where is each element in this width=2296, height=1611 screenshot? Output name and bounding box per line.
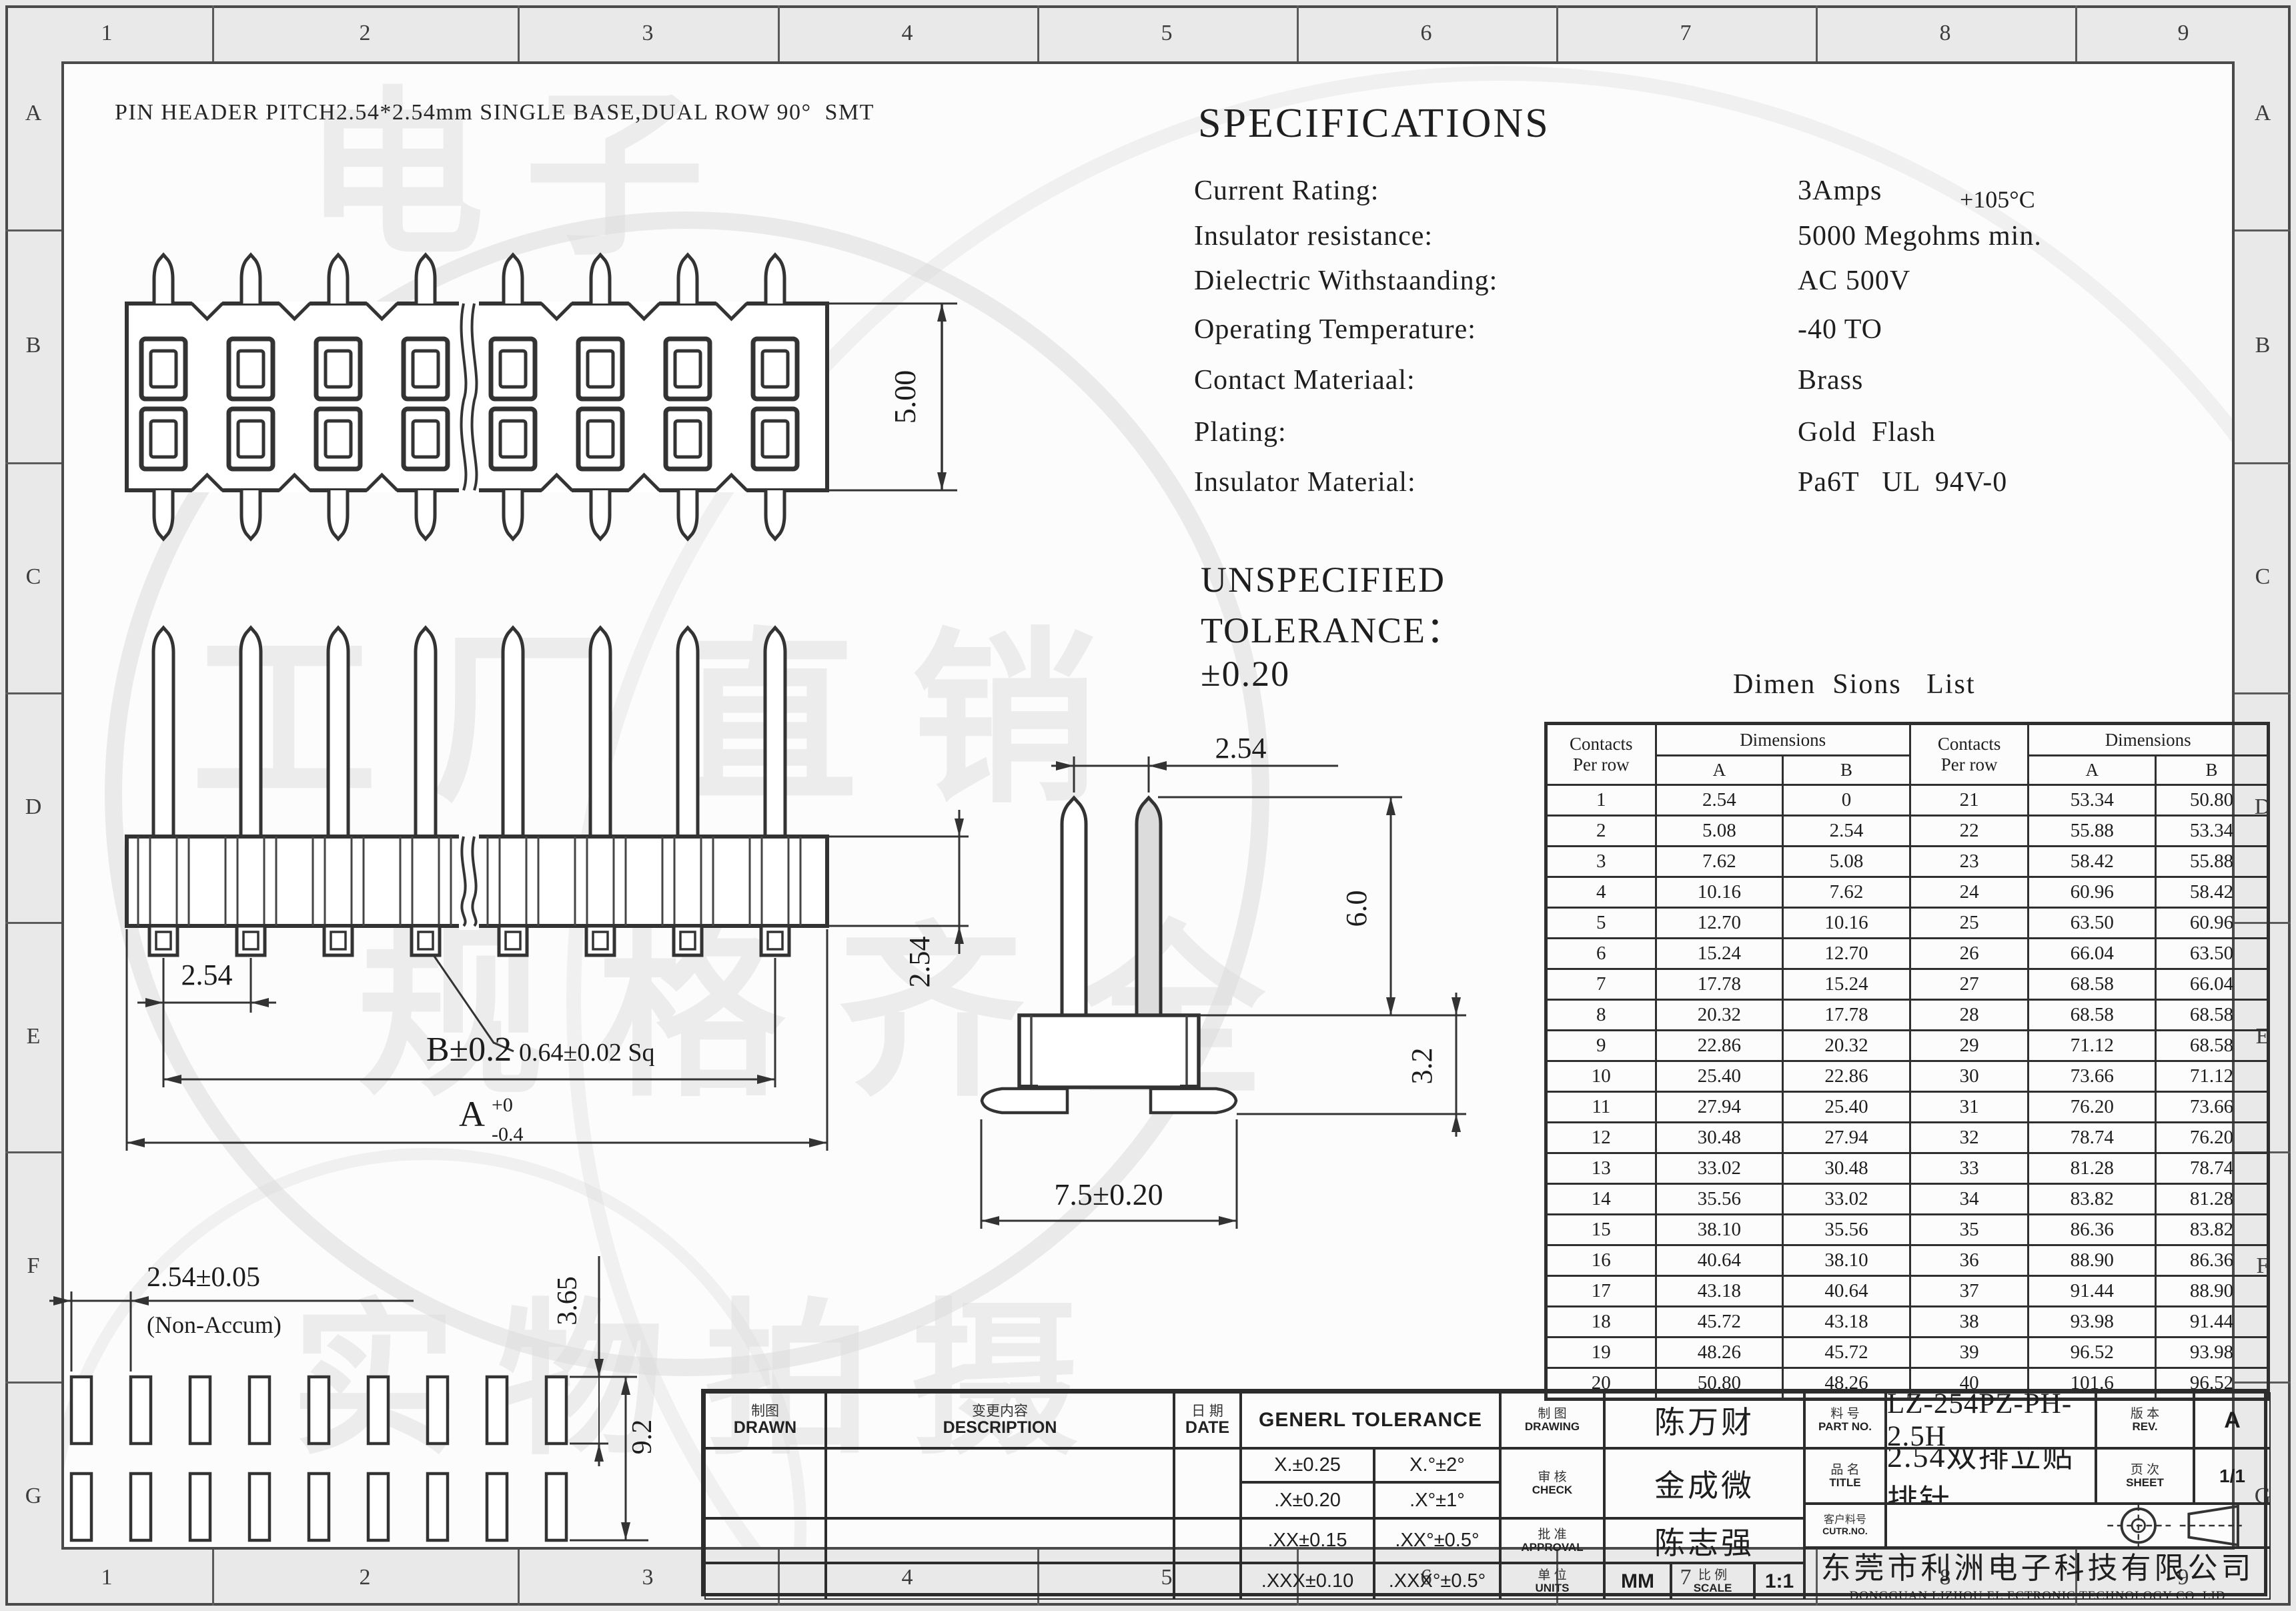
smt-feet	[149, 926, 789, 955]
table-row: 37.625.082358.4255.88	[1546, 847, 2269, 877]
units-value: MM	[1604, 1563, 1671, 1600]
projection-symbol-icon	[2105, 1505, 2245, 1546]
label-cn: 制 图	[1538, 1408, 1566, 1421]
label-en: APPROVAL	[1521, 1542, 1583, 1554]
dim-cell: 12.70	[1656, 908, 1783, 939]
frame-row-label: G	[25, 1484, 42, 1509]
dim-cell: 93.98	[2156, 1337, 2269, 1368]
frame-tick	[778, 5, 780, 61]
approval-name: 陈志强	[1604, 1518, 1804, 1563]
label-en: REV.	[2132, 1421, 2157, 1433]
header-line: Per row	[1911, 754, 2028, 775]
dim-cell: 16	[1546, 1245, 1656, 1276]
dim-cell: 22	[1910, 816, 2029, 847]
spec-label: Operating Temperature:	[1194, 314, 1476, 346]
table-row: 1538.1035.563586.3683.82	[1546, 1215, 2269, 1245]
revision-cell	[826, 1518, 1174, 1563]
revision-cell	[1174, 1563, 1241, 1600]
part-no-value: LZ-254PZ-PH-2.5H	[1886, 1392, 2096, 1448]
contact-pad-inner	[500, 351, 526, 387]
arrow-up-icon	[937, 304, 947, 322]
solder-pad	[368, 1377, 388, 1444]
dim-cell: 23	[1910, 847, 2029, 877]
dim-cell: 0	[1783, 785, 1910, 816]
frame-row-label: A	[25, 101, 42, 126]
solder-pad	[368, 1474, 388, 1540]
tolerance-linear: .XX±0.15	[1241, 1518, 1374, 1563]
dim-cell: 24	[1910, 877, 2029, 908]
label-en: SHEET	[2126, 1477, 2164, 1489]
frame-col-label: 6	[1421, 21, 1432, 46]
revision-cell	[1174, 1518, 1241, 1563]
label-cn: 日 期	[1191, 1404, 1223, 1419]
spec-label: Insulator Material:	[1194, 466, 1416, 498]
dim-cell: 13	[1546, 1153, 1656, 1184]
frame-col-label: 7	[1680, 21, 1692, 46]
label-sheet: 页 次SHEET	[2096, 1448, 2194, 1504]
dim-cell: 30	[1910, 1061, 2029, 1092]
dim-cell: 11	[1546, 1092, 1656, 1123]
pin	[678, 628, 698, 838]
contact-pad-inner	[588, 421, 613, 457]
dim-cell: 43.18	[1783, 1307, 1910, 1337]
label-en: CHECK	[1532, 1484, 1572, 1496]
dim-cell: 81.28	[2029, 1153, 2156, 1184]
pins	[153, 628, 785, 838]
table-row: 12.5402153.3450.80	[1546, 785, 2269, 816]
dim-cell: 8	[1546, 1000, 1656, 1031]
frame-row-label: E	[27, 1024, 41, 1049]
dim-cell: 33.02	[1783, 1184, 1910, 1215]
dim-pad-length: 3.65	[552, 1276, 583, 1325]
pin	[153, 628, 173, 838]
dim-cell: 91.44	[2029, 1276, 2156, 1307]
label-approval: 批 准APPROVAL	[1500, 1518, 1604, 1563]
rev-value: A	[2194, 1392, 2271, 1448]
solder-pad	[131, 1474, 151, 1540]
dim-cell: 38	[1910, 1307, 2029, 1337]
revision-cell	[704, 1518, 826, 1563]
frame-col-label: 8	[1940, 21, 1951, 46]
solder-pads	[71, 1377, 566, 1540]
table-row: 1127.9425.403176.2073.66	[1546, 1092, 2269, 1123]
dim-cell: 3	[1546, 847, 1656, 877]
dim-arrows	[981, 761, 1461, 1225]
dim-cell: 81.28	[2156, 1184, 2269, 1215]
label-cn: 批 准	[1538, 1528, 1566, 1542]
smt-foot-inner	[680, 932, 695, 949]
dimensions-table: Contacts Per row Dimensions Contacts Per…	[1544, 722, 2270, 1401]
dim-cell: 2	[1546, 816, 1656, 847]
contact-pad-inner	[326, 351, 351, 387]
title-value: 2.54双排立贴排针	[1886, 1448, 2096, 1504]
dim-row-span: 9.2	[627, 1420, 658, 1455]
dim-cell: 6	[1546, 939, 1656, 969]
dim-cell: 86.36	[2156, 1245, 2269, 1276]
table-row: 1333.0230.483381.2878.74	[1546, 1153, 2269, 1184]
solder-pad	[309, 1474, 329, 1540]
top-view-drawing: 5.00	[100, 240, 981, 554]
dim-cell: 28	[1910, 1000, 2029, 1031]
dim-cell: 40.64	[1656, 1245, 1783, 1276]
frame-col-label: 2	[360, 21, 371, 46]
dim-cell: 58.42	[2156, 877, 2269, 908]
solder-pad	[546, 1474, 566, 1540]
solder-pad	[190, 1474, 210, 1540]
table-row: 615.2412.702666.0463.50	[1546, 939, 2269, 969]
frame-col-label: 4	[902, 21, 913, 46]
label-cn: 审 核	[1538, 1471, 1566, 1484]
tolerance-angular: .XXX°±0.5°	[1374, 1563, 1500, 1600]
dim-cell: 37	[1910, 1276, 2029, 1307]
dim-cell: 21	[1910, 785, 2029, 816]
dim-cell: 17	[1546, 1276, 1656, 1307]
header-drawn: 制图DRAWN	[704, 1392, 826, 1448]
dim-cell: 25	[1910, 908, 2029, 939]
dim-cell: 18	[1546, 1307, 1656, 1337]
pin	[241, 628, 261, 838]
dim-lines	[981, 756, 1466, 1229]
contact-pad-inner	[500, 421, 526, 457]
frame-tick	[518, 5, 520, 61]
spec-value: Gold Flash	[1798, 416, 1936, 448]
spec-value: 3Amps	[1798, 175, 1882, 207]
tolerance-angular: .XX°±0.5°	[1374, 1518, 1500, 1563]
dim-cell: 30.48	[1656, 1123, 1783, 1153]
contact-pad-inner	[151, 351, 176, 387]
smt-foot-inner	[418, 932, 433, 949]
dim-cell: 22.86	[1656, 1031, 1783, 1061]
dim-cell: 7.62	[1656, 847, 1783, 877]
company-name-en: DONGGUAN LIZHOU EL ECTRONIC TECHNOLOGY C…	[1849, 1589, 2225, 1600]
dim-cell: 15	[1546, 1215, 1656, 1245]
revision-cell	[826, 1448, 1174, 1518]
dim-cell: 60.96	[2029, 877, 2156, 908]
label-title: 品 名TITLE	[1804, 1448, 1886, 1504]
dim-cell: 7	[1546, 969, 1656, 1000]
dim-cell: 20.32	[1783, 1031, 1910, 1061]
frame-tick	[1297, 5, 1299, 61]
solder-pad	[428, 1377, 448, 1444]
col-header-a: A	[2029, 756, 2156, 785]
dim-cell: 27.94	[1783, 1123, 1910, 1153]
spec-value: Brass	[1798, 364, 1863, 396]
specifications-section: SPECIFICATIONS Current Rating: 3Amps Ins…	[1194, 100, 2295, 540]
unspecified-tolerance-note: UNSPECIFIED TOLERANCE：±0.20	[1201, 559, 1464, 694]
header-date: 日 期DATE	[1174, 1392, 1241, 1448]
dim-cell: 15.24	[1656, 939, 1783, 969]
dim-cell: 34	[1910, 1184, 2029, 1215]
dim-cell: 35.56	[1656, 1184, 1783, 1215]
dimensions-list-heading: Dimen Sions List	[1733, 668, 1976, 700]
contact-pad-inner	[675, 351, 700, 387]
dim-cell: 68.58	[2029, 1000, 2156, 1031]
dim-cell: 31	[1910, 1092, 2029, 1123]
dim-span-b: B±0.2	[426, 1031, 512, 1069]
dim-pin-square: 0.64±0.02 Sq	[519, 1039, 655, 1067]
dim-cell: 83.82	[2029, 1184, 2156, 1215]
dim-cell: 63.50	[2029, 908, 2156, 939]
dim-cell: 7.62	[1783, 877, 1910, 908]
frame-tick	[5, 692, 61, 694]
arrow-down-icon	[937, 472, 947, 490]
title-block: 制图DRAWN 变更内容DESCRIPTION 日 期DATE GENERL T…	[701, 1389, 2267, 1596]
dim-cell: 88.90	[2156, 1276, 2269, 1307]
dim-body-height: 5.00	[888, 370, 922, 424]
pin	[1137, 798, 1161, 1015]
dim-pitch: 2.54	[1215, 732, 1267, 764]
dim-cell: 9	[1546, 1031, 1656, 1061]
dim-cell: 26	[1910, 939, 2029, 969]
tolerance-linear: .XXX±0.10	[1241, 1563, 1374, 1600]
smt-foot-inner	[156, 932, 171, 949]
drawing-note: PIN HEADER PITCH2.54*2.54mm SINGLE BASE,…	[115, 100, 875, 125]
table-row: 922.8620.322971.1268.58	[1546, 1031, 2269, 1061]
dim-cell: 5.08	[1783, 847, 1910, 877]
dim-cell: 60.96	[2156, 908, 2269, 939]
frame-tick	[1037, 5, 1039, 61]
table-row: 1230.4827.943278.7476.20	[1546, 1123, 2269, 1153]
spec-label: Contact Materiaal:	[1194, 364, 1415, 396]
dim-cell: 40.64	[1783, 1276, 1910, 1307]
label-cn: 页 次	[2131, 1464, 2159, 1477]
dim-span-a-tol-up: +0	[492, 1094, 513, 1116]
drawing-sheet: 电子 工厂直销 规格齐全 实物拍摄 112233445566778899AABB…	[0, 0, 2296, 1611]
dim-cell: 91.44	[2156, 1307, 2269, 1337]
label-en: TITLE	[1829, 1477, 1860, 1489]
dim-cell: 73.66	[2156, 1092, 2269, 1123]
dim-cell: 22.86	[1783, 1061, 1910, 1092]
dim-cell: 88.90	[2029, 1245, 2156, 1276]
dim-cell: 10.16	[1656, 877, 1783, 908]
table-row: 410.167.622460.9658.42	[1546, 877, 2269, 908]
dim-cell: 66.04	[2029, 939, 2156, 969]
tolerance-linear: .X±0.20	[1241, 1482, 1374, 1518]
header-line: Contacts	[1548, 734, 1655, 754]
dim-pin-height: 6.0	[1340, 891, 1373, 927]
spec-value: 5000 Megohms min.	[1798, 220, 2042, 252]
company-name-cn: 东莞市利洲电子科技有限公司	[1820, 1548, 2254, 1587]
table-row: 1845.7243.183893.9891.44	[1546, 1307, 2269, 1337]
frame-tick	[2235, 692, 2291, 694]
revision-cell	[704, 1448, 826, 1518]
contact-pad-inner	[413, 421, 438, 457]
dim-cell: 55.88	[2156, 847, 2269, 877]
solder-pad	[249, 1377, 269, 1444]
dim-cell: 4	[1546, 877, 1656, 908]
contact-pad-inner	[675, 421, 700, 457]
label-part-no: 料 号PART NO.	[1804, 1392, 1886, 1448]
label-en: UNITS	[1536, 1582, 1570, 1594]
spec-value: Pa6T UL 94V-0	[1798, 466, 2007, 498]
dim-cell: 35	[1910, 1215, 2029, 1245]
table-row: 512.7010.162563.5060.96	[1546, 908, 2269, 939]
dim-cell: 86.36	[2029, 1215, 2156, 1245]
frame-col-label: 1	[101, 21, 113, 46]
dim-pitch: 2.54	[181, 959, 233, 991]
dim-cell: 10.16	[1783, 908, 1910, 939]
dim-cell: 55.88	[2029, 816, 2156, 847]
dim-cell: 14	[1546, 1184, 1656, 1215]
table-row: 1640.6438.103688.9086.36	[1546, 1245, 2269, 1276]
sheet-value: 1/1	[2194, 1448, 2271, 1504]
pin	[765, 628, 785, 838]
label-en: CUTR.NO.	[1822, 1526, 1868, 1536]
contact-pad-inner	[238, 421, 263, 457]
solder-pad	[487, 1474, 507, 1540]
pin	[503, 628, 523, 838]
footprint-drawing: 2.54±0.05 (Non-Accum) 3.65 9.2	[40, 1239, 694, 1573]
customer-no-value	[1886, 1504, 2271, 1548]
revision-cell	[826, 1563, 1174, 1600]
smt-foot-inner	[331, 932, 346, 949]
frame-tick	[5, 922, 61, 924]
dim-cell: 2.54	[1656, 785, 1783, 816]
dim-pad-pitch: 2.54±0.05	[147, 1262, 260, 1293]
col-header-b: B	[2156, 756, 2269, 785]
spec-value: AC 500V	[1798, 265, 1910, 297]
table-row: 820.3217.782868.5868.58	[1546, 1000, 2269, 1031]
dim-cell: 68.58	[2029, 969, 2156, 1000]
col-header-dimensions: Dimensions	[1656, 724, 1910, 756]
frame-tick	[2075, 5, 2077, 61]
dim-cell: 78.74	[2029, 1123, 2156, 1153]
frame-row-label: B	[26, 333, 41, 358]
scale-value: 1:1	[1754, 1563, 1804, 1600]
dim-cell: 5.08	[1656, 816, 1783, 847]
contact-pad-inner	[326, 421, 351, 457]
spec-value: -40 TO	[1798, 314, 1882, 346]
dim-body-height: 3.2	[1405, 1048, 1438, 1085]
label-cn: 比 例	[1698, 1569, 1727, 1582]
break-lines	[459, 833, 479, 930]
dim-cell: 71.12	[2156, 1061, 2269, 1092]
frame-tick	[1816, 5, 1818, 61]
solder-pad	[487, 1377, 507, 1444]
dim-cell: 38.10	[1783, 1245, 1910, 1276]
frame-tick	[5, 1151, 61, 1153]
dim-cell: 78.74	[2156, 1153, 2269, 1184]
col-header-dimensions: Dimensions	[2029, 724, 2269, 756]
solder-pad	[428, 1474, 448, 1540]
table-row: 1948.2645.723996.5293.98	[1546, 1337, 2269, 1368]
dim-cell: 1	[1546, 785, 1656, 816]
smt-foot-inner	[768, 932, 782, 949]
label-rev: 版 本REV.	[2096, 1392, 2194, 1448]
dim-base-height: 2.54	[903, 937, 936, 988]
smt-foot-inner	[593, 932, 608, 949]
dim-cell: 20.32	[1656, 1000, 1783, 1031]
label-scale: 比 例SCALE	[1671, 1563, 1754, 1600]
drawing-name: 陈万财	[1604, 1392, 1804, 1448]
dim-span-a-tol-dn: -0.4	[492, 1123, 524, 1145]
label-en: PART NO.	[1818, 1421, 1872, 1433]
table-row: 1435.5633.023483.8281.28	[1546, 1184, 2269, 1215]
contact-pad-inner	[588, 351, 613, 387]
dim-cell: 71.12	[2029, 1031, 2156, 1061]
contact-pad-inner	[762, 421, 788, 457]
spec-label: Current Rating:	[1194, 175, 1379, 207]
smt-foot-right	[1151, 1089, 1236, 1113]
dim-cell: 15.24	[1783, 969, 1910, 1000]
spec-label: Plating:	[1194, 416, 1287, 448]
frame-tick	[1556, 5, 1558, 61]
dim-cell: 68.58	[2156, 1031, 2269, 1061]
header-general-tolerance: GENERL TOLERANCE	[1241, 1392, 1500, 1448]
dim-cell: 25.40	[1656, 1061, 1783, 1092]
label-units: 单 位UNITS	[1500, 1563, 1604, 1600]
dim-span-a: A	[459, 1094, 485, 1134]
dim-cell: 17.78	[1656, 969, 1783, 1000]
label-cn: 单 位	[1538, 1569, 1566, 1582]
side-view-drawing: 2.54 0.64±0.02 Sq B±0.2 A +0 -0.4 2.54	[100, 612, 994, 1167]
dim-cell: 53.34	[2156, 816, 2269, 847]
tolerance-note-label: UNSPECIFIED TOLERANCE：	[1201, 560, 1464, 650]
dim-cell: 53.34	[2029, 785, 2156, 816]
dim-cell: 12.70	[1783, 939, 1910, 969]
dim-pad-pitch-note: (Non-Accum)	[147, 1311, 281, 1338]
company-cell: 东莞市利洲电子科技有限公司 DONGGUAN LIZHOU EL ECTRONI…	[1804, 1548, 2271, 1600]
frame-tick	[212, 5, 214, 61]
col-header-contacts: Contacts Per row	[1910, 724, 2029, 785]
dim-cell: 33.02	[1656, 1153, 1783, 1184]
label-en: DATE	[1185, 1419, 1229, 1436]
dim-cell: 39	[1910, 1337, 2029, 1368]
dim-cell: 83.82	[2156, 1215, 2269, 1245]
end-view-drawing: 2.54 6.0 3.2 7.5±0.20	[961, 734, 1494, 1267]
dim-cell: 45.72	[1656, 1307, 1783, 1337]
dim-cell: 10	[1546, 1061, 1656, 1092]
dim-cell: 76.20	[2029, 1092, 2156, 1123]
contact-pad-inner	[413, 351, 438, 387]
frame-tick	[5, 462, 61, 464]
dim-width: 7.5±0.20	[1054, 1177, 1163, 1211]
revision-cell	[1174, 1448, 1241, 1518]
dim-cell: 96.52	[2029, 1337, 2156, 1368]
smt-foot-inner	[243, 932, 258, 949]
insulator-base	[1019, 1015, 1199, 1087]
frame-col-label: 3	[642, 21, 654, 46]
frame-row-label: F	[27, 1253, 40, 1279]
header-line: Per row	[1548, 754, 1655, 775]
header-line: Contacts	[1911, 734, 2028, 754]
dim-cell: 29	[1910, 1031, 2029, 1061]
dim-cell: 43.18	[1656, 1276, 1783, 1307]
dim-cell: 30.48	[1783, 1153, 1910, 1184]
label-en: SCALE	[1694, 1582, 1732, 1594]
table-row: 717.7815.242768.5866.04	[1546, 969, 2269, 1000]
dim-cell: 27	[1910, 969, 2029, 1000]
pin	[328, 628, 348, 838]
table-row: 25.082.542255.8853.34	[1546, 816, 2269, 847]
label-cn: 版 本	[2131, 1408, 2159, 1421]
solder-pad	[546, 1377, 566, 1444]
smt-foot-inner	[506, 932, 520, 949]
dim-cell: 58.42	[2029, 847, 2156, 877]
dim-cell: 73.66	[2029, 1061, 2156, 1092]
frame-tick	[5, 229, 61, 231]
dim-cell: 5	[1546, 908, 1656, 939]
dim-cell: 35.56	[1783, 1215, 1910, 1245]
dim-cell: 19	[1546, 1337, 1656, 1368]
dim-cell: 38.10	[1656, 1215, 1783, 1245]
label-cn: 客户料号	[1824, 1515, 1866, 1526]
table-row: 1743.1840.643791.4488.90	[1546, 1276, 2269, 1307]
revision-cell	[704, 1563, 826, 1600]
label-en: DRAWING	[1525, 1421, 1580, 1433]
dim-cell: 25.40	[1783, 1092, 1910, 1123]
dim-cell: 32	[1910, 1123, 2029, 1153]
